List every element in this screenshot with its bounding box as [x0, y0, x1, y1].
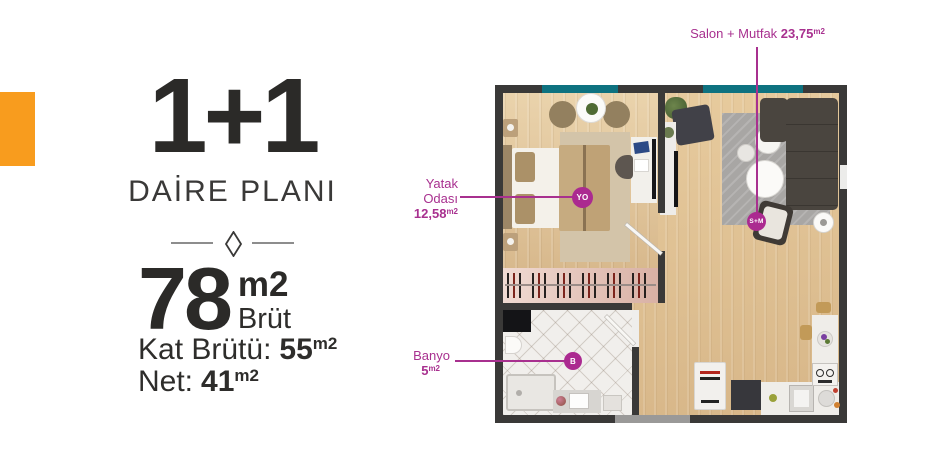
wall	[658, 93, 665, 213]
label-yatak-odasi: Yatak Odası 12,58m2	[370, 177, 458, 222]
net-area-line: Net:41m2	[110, 366, 355, 398]
floor-gross-line: Kat Brütü:55m2	[110, 334, 355, 366]
net-area-value: 41	[201, 365, 234, 398]
sofa-chaise	[760, 98, 788, 142]
badge-banyo: B	[564, 352, 582, 370]
desk-chair	[615, 155, 633, 179]
orange-accent-bar	[0, 92, 35, 166]
floor-plan	[495, 85, 847, 423]
side-tray	[737, 144, 755, 162]
leader-line-banyo	[455, 360, 566, 362]
badge-salon-mutfak: S+M	[747, 212, 766, 231]
label-salon-mutfak: Salon + Mutfak 23,75m2	[650, 27, 865, 42]
wall-niche	[840, 165, 847, 189]
gross-area-unit: m2	[238, 267, 291, 302]
fridge	[694, 362, 726, 410]
wardrobe-rail	[505, 284, 656, 286]
divider-line	[171, 242, 213, 244]
veg-icon	[769, 394, 777, 402]
plan-subtitle: DAİRE PLANI	[110, 175, 355, 209]
page: 1+1 DAİRE PLANI 78 m2 Brüt Kat Brütü:55m…	[0, 0, 934, 470]
tomato-icon	[833, 388, 838, 393]
bedroom-armchair	[549, 101, 576, 128]
kitchen-counter	[761, 382, 839, 415]
sofa	[786, 98, 838, 210]
plant-icon	[586, 103, 598, 115]
flowers-icon	[556, 396, 566, 406]
bedroom-floor	[503, 93, 658, 268]
fruit-icon	[834, 402, 840, 408]
stove	[812, 363, 838, 386]
badge-yatak-odasi: YO	[572, 187, 593, 208]
gross-area-label: Brüt	[238, 305, 291, 334]
floor-gross-unit: m2	[313, 334, 338, 353]
chair	[816, 302, 831, 313]
shaft-block	[503, 310, 531, 332]
plan-type-title: 1+1	[110, 70, 355, 163]
diamond-icon	[225, 231, 240, 255]
desk-tv	[652, 139, 656, 199]
kitchen-table	[812, 315, 838, 363]
wall	[658, 251, 665, 303]
plate	[818, 390, 835, 407]
nightstand	[503, 119, 518, 137]
pillow	[515, 194, 535, 224]
entrance-threshold	[615, 415, 690, 423]
drain-icon	[516, 390, 522, 396]
tv	[674, 151, 678, 207]
round-table	[576, 93, 606, 123]
floor-gross-value: 55	[279, 333, 312, 366]
notebook	[633, 141, 649, 154]
shower	[506, 374, 556, 411]
kitchen-cabinet-dark	[731, 380, 761, 410]
stool	[603, 395, 622, 411]
info-panel: 1+1 DAİRE PLANI 78 m2 Brüt Kat Brütü:55m…	[110, 70, 355, 398]
nightstand	[503, 233, 518, 251]
kitchen-sink	[789, 385, 814, 412]
sink	[569, 393, 589, 409]
bedroom-armchair	[603, 101, 630, 128]
divider-line	[252, 242, 294, 244]
window	[703, 85, 803, 93]
wardrobe	[503, 268, 658, 303]
vanity	[553, 390, 601, 413]
net-area-label: Net:	[138, 365, 193, 398]
wall	[632, 347, 639, 415]
ottoman	[671, 104, 715, 146]
label-banyo: Banyo 5m2	[388, 349, 450, 379]
leader-line-yatak	[460, 196, 573, 198]
window	[542, 85, 618, 93]
coffee-table	[746, 160, 784, 198]
gross-area: 78 m2 Brüt	[110, 265, 355, 334]
net-area-unit: m2	[234, 366, 259, 385]
floor-gross-label: Kat Brütü:	[138, 333, 271, 366]
bed-headboard	[503, 145, 512, 229]
paper	[634, 159, 649, 172]
leader-line-salon	[756, 47, 758, 213]
bed	[512, 148, 610, 228]
pillow	[515, 152, 535, 182]
chair	[800, 325, 812, 340]
side-table-decor	[820, 219, 827, 226]
gross-area-value: 78	[138, 265, 230, 334]
